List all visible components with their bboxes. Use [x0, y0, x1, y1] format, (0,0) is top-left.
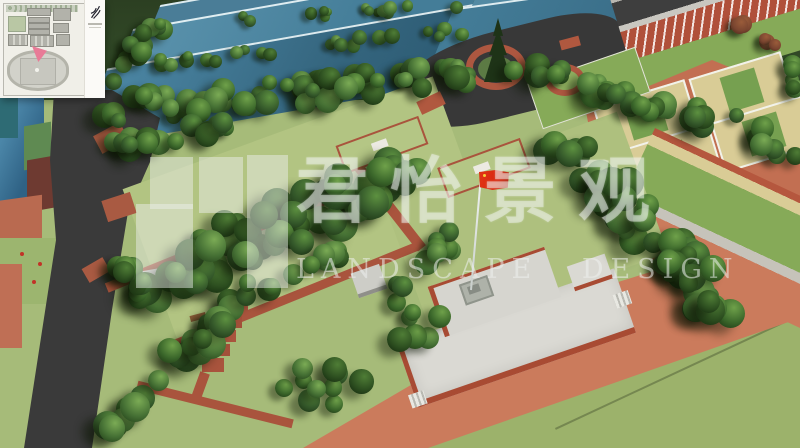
watermark-cjk-text: 君怡景观: [296, 154, 672, 230]
tree: [209, 311, 236, 338]
inset-caption-line: [88, 23, 102, 25]
crane-logo-icon: [89, 4, 102, 20]
tree: [167, 133, 184, 150]
tree: [154, 18, 166, 30]
inset-legend-strip: [84, 0, 105, 98]
inset-building: [27, 8, 51, 16]
inset-building: [53, 23, 69, 33]
tree: [444, 65, 470, 91]
tree: [154, 53, 167, 66]
tree: [684, 106, 706, 128]
tree: [120, 392, 150, 422]
tree: [289, 229, 314, 254]
landscape-render-viewport: 君怡景观 LANDSCAPE DESIGN: [0, 0, 800, 448]
tree: [232, 91, 257, 116]
inset-building: [8, 34, 28, 46]
tree: [280, 78, 294, 92]
tree: [135, 87, 153, 105]
tree: [195, 230, 226, 261]
autumn-tree: [769, 39, 782, 52]
tree: [547, 65, 566, 84]
tree: [423, 26, 434, 37]
tree: [263, 48, 277, 62]
tree: [131, 42, 152, 63]
autumn-tree: [731, 17, 748, 34]
tree: [349, 369, 374, 394]
site-plan-inset: [0, 0, 104, 98]
inset-building: [56, 34, 70, 46]
inset-caption-line: [89, 27, 101, 28]
tree: [105, 73, 122, 90]
inset-building: [30, 35, 54, 47]
tree: [786, 147, 800, 166]
tree: [111, 113, 126, 128]
tree: [254, 90, 279, 115]
tree: [352, 30, 367, 45]
tree: [230, 46, 243, 59]
tree: [113, 261, 135, 283]
tree: [750, 133, 773, 156]
tree: [262, 75, 277, 90]
tree: [305, 83, 320, 98]
tree: [412, 78, 432, 98]
tree: [428, 305, 451, 328]
inset-field-dot: [35, 68, 39, 72]
tree: [275, 379, 293, 397]
tree: [307, 380, 326, 399]
tree: [334, 38, 348, 52]
tree: [402, 0, 414, 12]
watermark-logo-block: [150, 157, 193, 209]
tree: [135, 24, 152, 41]
tree: [334, 76, 358, 100]
tree: [504, 61, 524, 81]
tree: [786, 80, 800, 95]
tree: [384, 28, 400, 44]
tree: [193, 329, 212, 348]
tree: [697, 290, 720, 313]
tree: [325, 395, 344, 414]
tree: [148, 370, 169, 391]
watermark-latin-text: LANDSCAPE DESIGN: [296, 254, 740, 285]
watermark-logo-block: [247, 155, 288, 288]
tree: [209, 55, 222, 68]
tree: [577, 72, 599, 94]
watermark-logo-block: [199, 157, 243, 213]
tree: [244, 15, 256, 27]
tree: [450, 1, 463, 14]
inset-building: [53, 8, 71, 21]
tree: [383, 1, 397, 15]
tree: [606, 84, 626, 104]
watermark-logo-block: [136, 204, 193, 288]
tree: [305, 7, 318, 20]
tree: [784, 61, 800, 78]
tree: [434, 31, 445, 42]
tree: [99, 415, 126, 442]
tree: [387, 327, 412, 352]
tree: [364, 6, 374, 16]
tree: [729, 108, 744, 123]
inset-courtyard-garden: [8, 16, 26, 32]
tree: [404, 304, 421, 321]
tree: [455, 28, 469, 42]
tree: [370, 73, 385, 88]
